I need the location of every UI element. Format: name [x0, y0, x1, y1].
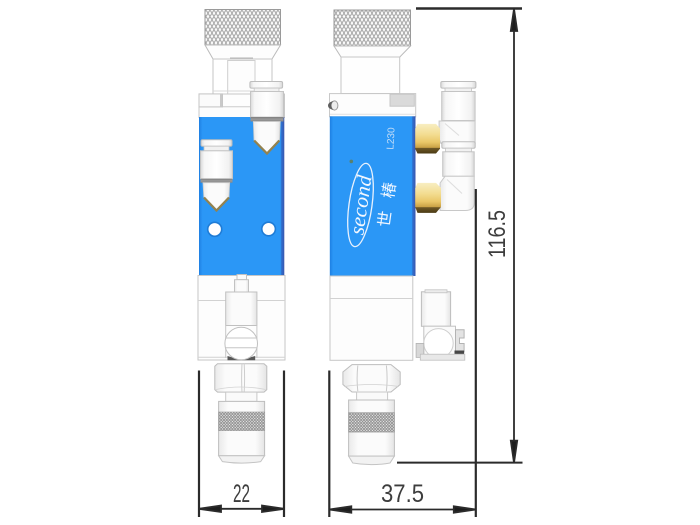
svg-text:L230: L230	[385, 127, 397, 150]
svg-text:22: 22	[233, 480, 250, 508]
svg-text:37.5: 37.5	[381, 480, 424, 508]
svg-text:116.5: 116.5	[484, 210, 511, 258]
